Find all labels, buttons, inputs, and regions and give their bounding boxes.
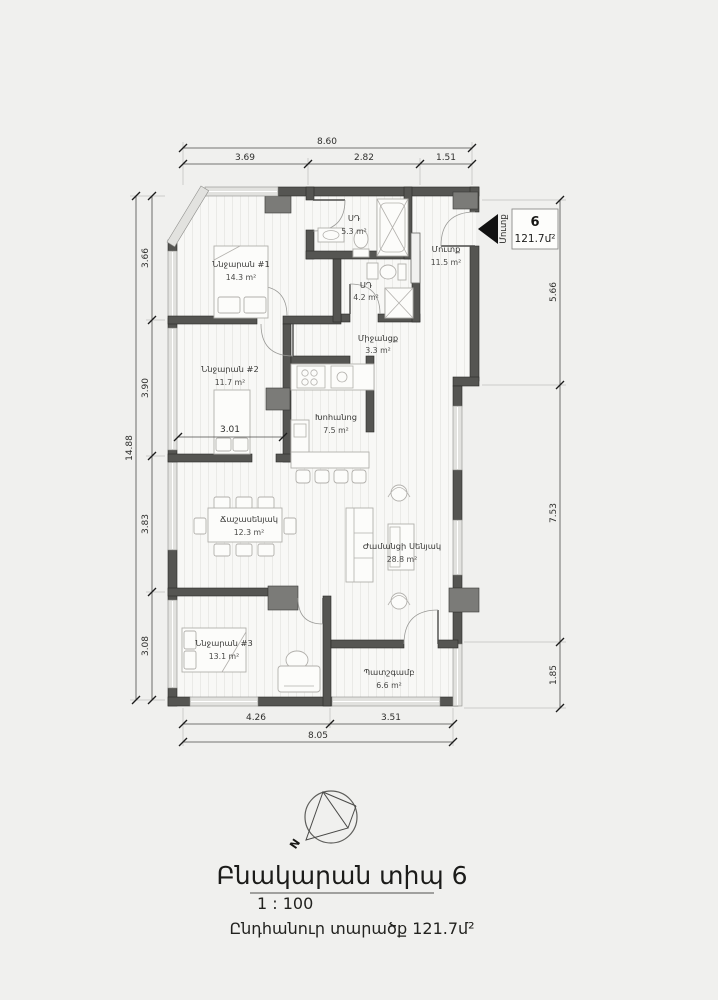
room-label-bedroom1: Ննջարան #1: [212, 259, 270, 269]
dim-interior: 3.01: [220, 425, 240, 435]
room-label-balcony: Պատշգամբ: [364, 667, 415, 677]
unit-marker: Մուտք 6 121.7մ²: [478, 209, 558, 249]
room-area-bath1: 5.3 m²: [341, 227, 367, 236]
dim-left-seg4: 3.08: [141, 636, 151, 656]
room-label-bedroom2: Ննջարան #2: [201, 364, 259, 374]
room-area-corridor: 3.3 m²: [365, 346, 391, 355]
bed-single-icon: [214, 390, 250, 454]
dim-top-seg1: 3.69: [235, 153, 255, 163]
dim-bottom-seg1: 4.26: [246, 713, 266, 723]
duct-shaft: [411, 233, 420, 283]
compass-circle-icon: [305, 791, 357, 843]
floorplan-page: 8.60 3.69 2.82 1.51 14.88 3.66 3.90 3.83…: [0, 0, 718, 1000]
room-area-bedroom2: 11.7 m²: [215, 378, 246, 387]
bed-double-icon: [214, 246, 268, 318]
compass: N: [287, 791, 357, 851]
kitchen-sink-unit-icon: [291, 420, 309, 454]
unit-area: 121.7մ²: [515, 233, 556, 245]
plan-total-area: Ընդհանուր տարածք 121.7մ²: [229, 919, 474, 938]
toilet2-icon: [367, 263, 406, 280]
unit-number: 6: [530, 215, 539, 230]
room-label-bath2: ՍԴ: [360, 280, 373, 290]
room-area-dining: 12.3 m²: [234, 528, 265, 537]
dim-left-seg2: 3.90: [141, 378, 151, 398]
room-label-bedroom3: Ննջարան #3: [195, 638, 253, 648]
dim-top-seg3: 1.51: [436, 153, 456, 163]
compass-north-label: N: [287, 836, 303, 851]
floorplan-drawing: 8.60 3.69 2.82 1.51 14.88 3.66 3.90 3.83…: [0, 0, 718, 1000]
room-area-entry: 11.5 m²: [431, 258, 462, 267]
dim-right-seg2: 7.53: [549, 503, 559, 523]
dim-left-total: 14.88: [125, 435, 135, 461]
sink-icon: [318, 228, 344, 242]
room-label-corridor: Միջանցք: [358, 333, 398, 343]
room-label-kitchen: Խոհանոց: [315, 412, 357, 422]
entrance-arrow-icon: [478, 214, 498, 244]
room-area-bedroom1: 14.3 m²: [226, 273, 257, 282]
title-block: Բնակարան տիպ 6 1 : 100 Ընդհանուր տարածք …: [216, 861, 474, 938]
stove-counter-icon: [291, 364, 374, 390]
entrance-label: Մուտք: [499, 214, 509, 244]
room-label-entry: Մուտք: [432, 244, 461, 254]
room-area-living: 28.8 m²: [387, 555, 418, 564]
dim-right-seg3: 1.85: [549, 665, 559, 685]
room-area-bath2: 4.2 m²: [353, 293, 379, 302]
dim-left-seg3: 3.83: [141, 514, 151, 534]
dim-right-seg1: 5.66: [549, 282, 559, 302]
plan-scale: 1 : 100: [257, 894, 313, 913]
dim-bottom-seg2: 3.51: [381, 713, 401, 723]
shower-icon: [385, 288, 413, 318]
room-area-kitchen: 7.5 m²: [323, 426, 349, 435]
room-label-dining: Ճաշասենյակ: [220, 514, 278, 524]
room-area-balcony: 6.6 m²: [376, 681, 402, 690]
room-area-bedroom3: 13.1 m²: [209, 652, 240, 661]
dim-top-seg2: 2.82: [354, 153, 374, 163]
dim-top-total: 8.60: [317, 137, 337, 147]
room-label-bath1: ՍԴ: [348, 213, 361, 223]
room-label-living: Ժամանցի Սենյակ: [363, 541, 441, 551]
dim-bottom-total: 8.05: [308, 731, 328, 741]
bathtub-icon: [377, 199, 408, 256]
bed3-icon: [182, 628, 246, 672]
dim-left-seg1: 3.66: [141, 248, 151, 268]
plan-title: Բնակարան տիպ 6: [216, 861, 467, 890]
